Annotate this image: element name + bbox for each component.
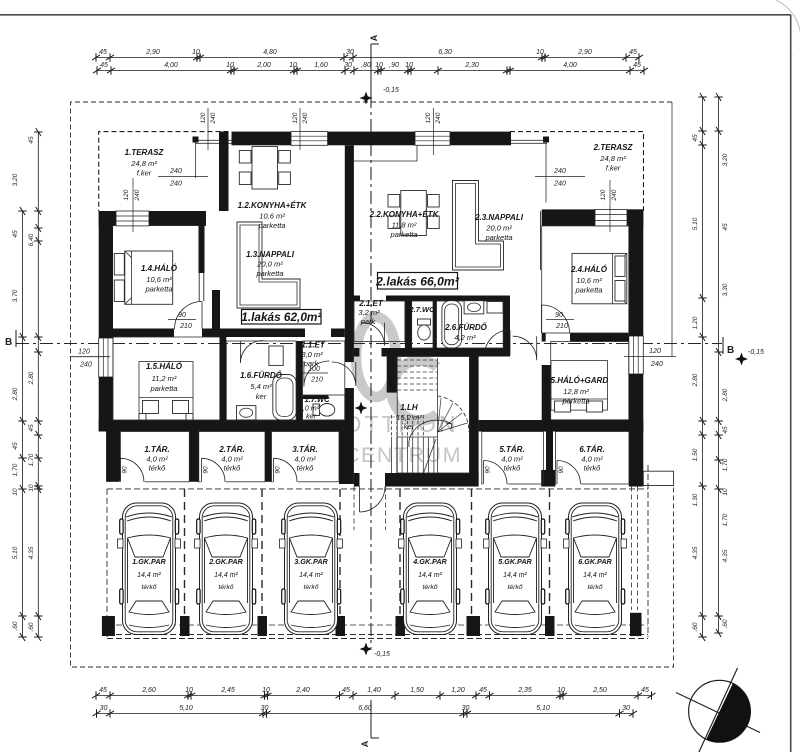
svg-text:14,4 m²: 14,4 m² — [503, 572, 527, 579]
svg-text:3,30: 3,30 — [722, 283, 729, 296]
svg-text:1,60: 1,60 — [314, 62, 328, 69]
svg-text:2,30: 2,30 — [464, 62, 479, 69]
svg-text:10,6 m²: 10,6 m² — [259, 212, 285, 221]
svg-text:parketta: parketta — [257, 221, 285, 230]
svg-text:3,0 m²: 3,0 m² — [301, 350, 323, 359]
svg-text:3.GK.PAR: 3.GK.PAR — [294, 557, 328, 566]
svg-text:-0,15: -0,15 — [374, 651, 390, 658]
svg-text:f.ker: f.ker — [137, 169, 152, 178]
svg-text:120: 120 — [123, 189, 130, 200]
svg-text:90: 90 — [121, 466, 128, 474]
svg-text:f.ker: f.ker — [606, 164, 621, 173]
svg-text:5.TÁR.: 5.TÁR. — [499, 445, 524, 454]
svg-text:6.GK.PAR: 6.GK.PAR — [578, 557, 612, 566]
svg-text:térkő: térkő — [507, 584, 522, 591]
svg-text:2,90: 2,90 — [145, 49, 160, 56]
svg-text:10: 10 — [192, 49, 200, 56]
svg-text:10: 10 — [405, 62, 413, 69]
svg-text:4,80: 4,80 — [263, 49, 277, 56]
svg-text:14,4 m²: 14,4 m² — [137, 572, 161, 579]
svg-text:10: 10 — [289, 62, 297, 69]
svg-text:240: 240 — [435, 112, 442, 124]
svg-text:240: 240 — [553, 168, 566, 175]
svg-text:1,20: 1,20 — [692, 316, 699, 329]
svg-text:5.GK.PAR: 5.GK.PAR — [498, 557, 532, 566]
svg-text:1.1.ET: 1.1.ET — [301, 341, 326, 350]
svg-text:240: 240 — [169, 168, 182, 175]
svg-text:1.GK.PAR: 1.GK.PAR — [132, 557, 166, 566]
svg-text:B: B — [727, 345, 734, 356]
svg-text:2,35: 2,35 — [517, 687, 532, 694]
svg-text:-0,15: -0,15 — [383, 87, 399, 94]
svg-text:45: 45 — [99, 687, 107, 694]
svg-text:2.6.FÜRDŐ: 2.6.FÜRDŐ — [444, 323, 488, 332]
svg-text:20,0 m²: 20,0 m² — [256, 260, 283, 269]
svg-text:6,30: 6,30 — [438, 49, 452, 56]
svg-text:6.TÁR.: 6.TÁR. — [579, 445, 604, 454]
svg-text:1.2.KONYHA+ÉTK: 1.2.KONYHA+ÉTK — [238, 201, 308, 210]
svg-text:park: park — [360, 317, 377, 326]
svg-text:parketta: parketta — [389, 230, 417, 239]
svg-text:1,30: 1,30 — [692, 493, 699, 506]
svg-text:4,35: 4,35 — [692, 546, 699, 559]
svg-text:30: 30 — [100, 705, 108, 712]
svg-text:45: 45 — [100, 62, 108, 69]
svg-text:2,80: 2,80 — [12, 387, 19, 401]
svg-text:2,60: 2,60 — [141, 687, 156, 694]
svg-text:10: 10 — [262, 687, 270, 694]
svg-text:ker: ker — [306, 414, 316, 421]
svg-text:2,80: 2,80 — [722, 388, 729, 402]
svg-text:3,20: 3,20 — [12, 173, 19, 186]
svg-text:14,4 m²: 14,4 m² — [214, 572, 238, 579]
svg-text:parketta: parketta — [255, 269, 283, 278]
svg-text:24,8 m²: 24,8 m² — [599, 154, 626, 163]
svg-text:10: 10 — [722, 488, 729, 496]
svg-text:10: 10 — [557, 687, 565, 694]
svg-text:11,2 m²: 11,2 m² — [152, 374, 177, 383]
svg-text:térkő: térkő — [422, 584, 437, 591]
svg-text:10: 10 — [226, 62, 234, 69]
svg-text:6,60: 6,60 — [358, 705, 372, 712]
svg-text:24,8 m²: 24,8 m² — [130, 159, 157, 168]
svg-text:2.lakás 66,0m²: 2.lakás 66,0m² — [375, 274, 460, 288]
svg-text:30: 30 — [344, 62, 352, 69]
svg-text:4.GK.PAR: 4.GK.PAR — [412, 557, 447, 566]
svg-text:240: 240 — [650, 361, 663, 368]
svg-text:5,10: 5,10 — [12, 546, 19, 559]
svg-text:240: 240 — [169, 181, 182, 188]
svg-text:90: 90 — [178, 312, 186, 319]
svg-text:90: 90 — [558, 466, 565, 474]
svg-text:2,45: 2,45 — [220, 687, 235, 694]
svg-text:240: 240 — [134, 189, 141, 201]
svg-text:30: 30 — [462, 705, 470, 712]
svg-text:90: 90 — [203, 466, 210, 474]
svg-text:90: 90 — [555, 312, 563, 319]
svg-text:100: 100 — [308, 366, 320, 373]
svg-text:45: 45 — [722, 426, 729, 434]
svg-text:térkő: térkő — [504, 464, 522, 473]
svg-text:parketta: parketta — [484, 233, 512, 242]
svg-text:térkő: térkő — [141, 584, 156, 591]
svg-text:45: 45 — [722, 223, 729, 231]
svg-text:210: 210 — [179, 323, 192, 330]
svg-text:4,00: 4,00 — [563, 62, 577, 69]
svg-text:240: 240 — [553, 181, 566, 188]
svg-text:1,50: 1,50 — [692, 448, 699, 461]
svg-text:B: B — [5, 337, 12, 348]
svg-text:A: A — [369, 34, 379, 41]
svg-text:1.TÁR.: 1.TÁR. — [144, 445, 169, 454]
svg-text:10: 10 — [185, 687, 193, 694]
svg-text:3,20: 3,20 — [722, 153, 729, 166]
svg-text:2,80: 2,80 — [692, 373, 699, 387]
svg-text:120: 120 — [78, 349, 90, 356]
svg-text:térkő: térkő — [218, 584, 233, 591]
svg-text:térkő: térkő — [297, 464, 315, 473]
svg-text:2,40: 2,40 — [295, 687, 310, 694]
svg-text:1.5.HÁLÓ: 1.5.HÁLÓ — [146, 362, 183, 371]
svg-text:45: 45 — [641, 687, 649, 694]
svg-text:ker: ker — [404, 422, 415, 431]
svg-text:2,90: 2,90 — [577, 49, 592, 56]
svg-text:45: 45 — [12, 442, 19, 450]
svg-text:parketta: parketta — [149, 384, 177, 393]
svg-text:3,2 m²: 3,2 m² — [358, 308, 380, 317]
svg-text:20,0 m²: 20,0 m² — [485, 224, 512, 233]
svg-text:10,6 m²: 10,6 m² — [576, 276, 602, 285]
svg-text:1.3.NAPPALI: 1.3.NAPPALI — [246, 250, 295, 259]
svg-text:4,0 m²: 4,0 m² — [501, 455, 523, 464]
svg-text:-0,15: -0,15 — [748, 349, 764, 356]
svg-text:,90: ,90 — [389, 62, 399, 69]
svg-text:2.5.HÁLÓ+GARD: 2.5.HÁLÓ+GARD — [543, 376, 608, 385]
svg-text:4,35: 4,35 — [722, 549, 729, 562]
svg-text:4,0 m²: 4,0 m² — [221, 455, 243, 464]
svg-text:45: 45 — [633, 62, 641, 69]
svg-text:14,4 m²: 14,4 m² — [583, 572, 607, 579]
svg-text:parketta: parketta — [574, 286, 602, 295]
svg-text:90: 90 — [275, 466, 282, 474]
svg-text:,60: ,60 — [28, 622, 35, 631]
svg-text:240: 240 — [611, 189, 618, 201]
svg-text:1.4.HÁLÓ: 1.4.HÁLÓ — [141, 264, 178, 273]
svg-text:térkő: térkő — [149, 464, 167, 473]
svg-text:10: 10 — [375, 62, 383, 69]
svg-text:2.4.HÁLÓ: 2.4.HÁLÓ — [570, 265, 608, 274]
svg-text:14,4 m²: 14,4 m² — [418, 572, 442, 579]
svg-text:1,20: 1,20 — [451, 687, 465, 694]
svg-text:14,4 m²: 14,4 m² — [299, 572, 323, 579]
svg-text:térkő: térkő — [224, 464, 242, 473]
svg-text:,60: ,60 — [692, 622, 699, 631]
svg-text:1,70: 1,70 — [722, 458, 729, 471]
svg-text:2.7.WC: 2.7.WC — [408, 305, 435, 314]
svg-text:5,4 m²: 5,4 m² — [250, 382, 272, 391]
svg-text:45: 45 — [479, 687, 487, 694]
svg-text:12,8 m²: 12,8 m² — [563, 387, 589, 396]
svg-text:térkő: térkő — [584, 464, 602, 473]
svg-text:120: 120 — [425, 112, 432, 123]
svg-text:210: 210 — [310, 377, 323, 384]
svg-text:10,6 m²: 10,6 m² — [146, 275, 172, 284]
svg-text:2.TERASZ: 2.TERASZ — [593, 143, 634, 152]
svg-text:30: 30 — [346, 49, 354, 56]
svg-text:2.2.KONYHA+ÉTK: 2.2.KONYHA+ÉTK — [369, 210, 440, 219]
svg-text:2.TÁR.: 2.TÁR. — [218, 445, 244, 454]
svg-text:A: A — [360, 740, 370, 747]
svg-text:2.3.NAPPALI: 2.3.NAPPALI — [474, 213, 524, 222]
svg-text:90: 90 — [485, 466, 492, 474]
svg-text:térkő: térkő — [587, 584, 602, 591]
svg-text:1,70: 1,70 — [28, 453, 35, 466]
svg-text:1.TERASZ: 1.TERASZ — [125, 148, 165, 157]
svg-text:45: 45 — [28, 136, 35, 144]
svg-text:45: 45 — [12, 230, 19, 238]
svg-text:210: 210 — [555, 323, 568, 330]
svg-text:240: 240 — [302, 112, 309, 124]
svg-text:3,70: 3,70 — [12, 289, 19, 302]
svg-text:10: 10 — [28, 484, 35, 492]
svg-text:120: 120 — [600, 189, 607, 200]
svg-text:5,10: 5,10 — [692, 217, 699, 230]
svg-text:1.LH: 1.LH — [400, 403, 418, 412]
svg-text:1.7.WC: 1.7.WC — [304, 395, 330, 404]
svg-text:45: 45 — [692, 134, 699, 142]
svg-text:1,70: 1,70 — [722, 513, 729, 526]
svg-text:1.6.FÜRDŐ: 1.6.FÜRDŐ — [240, 371, 283, 380]
svg-text:5,10: 5,10 — [179, 705, 193, 712]
svg-text:1,50: 1,50 — [410, 687, 424, 694]
svg-text:1,70: 1,70 — [12, 463, 19, 476]
svg-text:45: 45 — [629, 49, 637, 56]
svg-text:10: 10 — [536, 49, 544, 56]
svg-text:11,8 m²: 11,8 m² — [392, 221, 417, 230]
svg-text:45: 45 — [28, 424, 35, 432]
svg-text:45: 45 — [99, 49, 107, 56]
svg-text:parketta: parketta — [144, 285, 172, 294]
svg-text:2.1.ET: 2.1.ET — [358, 299, 384, 308]
svg-text:4,0 m²: 4,0 m² — [581, 455, 603, 464]
svg-text:30: 30 — [622, 705, 630, 712]
svg-text:4,0 m²: 4,0 m² — [146, 455, 168, 464]
svg-text:30: 30 — [261, 705, 269, 712]
svg-text:120: 120 — [292, 112, 299, 123]
svg-text:120: 120 — [649, 348, 661, 355]
svg-text:6,40: 6,40 — [28, 233, 35, 246]
svg-text:4,35: 4,35 — [28, 546, 35, 559]
svg-text:,80: ,80 — [361, 62, 371, 69]
svg-text:1.lakás 62,0m²: 1.lakás 62,0m² — [241, 310, 322, 324]
svg-text:CENTRUM: CENTRUM — [344, 443, 462, 467]
svg-text:2,80: 2,80 — [28, 371, 35, 385]
svg-text:240: 240 — [79, 362, 92, 369]
svg-text:2,50: 2,50 — [592, 687, 607, 694]
svg-text:4,00: 4,00 — [164, 62, 178, 69]
svg-text:15,2 m²: 15,2 m² — [396, 413, 422, 422]
svg-text:ker: ker — [256, 392, 267, 401]
svg-text:2,00: 2,00 — [256, 62, 271, 69]
svg-text:240: 240 — [210, 112, 217, 124]
svg-text:,60: ,60 — [12, 621, 19, 630]
svg-text:parketta: parketta — [561, 397, 589, 406]
svg-text:3.TÁR.: 3.TÁR. — [292, 445, 317, 454]
svg-text:2.GK.PAR: 2.GK.PAR — [208, 557, 243, 566]
svg-text:4,0 m²: 4,0 m² — [294, 455, 316, 464]
svg-text:4,2 m²: 4,2 m² — [454, 333, 476, 342]
svg-text:10: 10 — [12, 488, 19, 496]
svg-text:térkő: térkő — [303, 584, 318, 591]
svg-text:45: 45 — [342, 687, 350, 694]
svg-text:,60: ,60 — [722, 619, 729, 628]
svg-text:5,10: 5,10 — [536, 705, 550, 712]
svg-text:120: 120 — [200, 112, 207, 123]
svg-text:1,40: 1,40 — [367, 687, 381, 694]
